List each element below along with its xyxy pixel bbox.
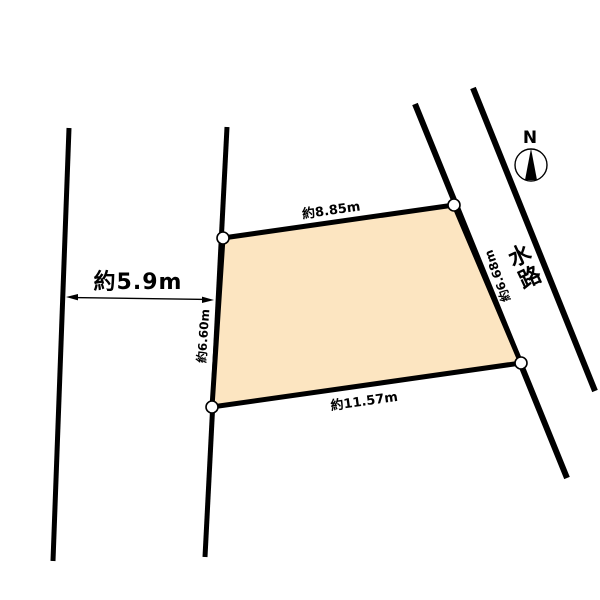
road-width-arrow-shaft: [74, 298, 206, 300]
site-plan-canvas: N 約8.85m 約11.57m 約6.60m 約6.68m 約5.9m 水路: [0, 0, 600, 600]
parcel-polygon: [212, 205, 521, 407]
road-edge-line-west: [53, 128, 69, 561]
arrowhead-right-icon: [202, 297, 214, 303]
compass: [515, 149, 547, 182]
parcel-vertex-marker-sw: [206, 401, 218, 413]
compass-north-label: N: [523, 128, 537, 148]
road-width-label: 約5.9m: [94, 264, 183, 296]
parcel-vertex-marker-nw: [217, 232, 229, 244]
parcel-vertex-marker-ne: [448, 199, 460, 211]
arrowhead-left-icon: [66, 294, 78, 300]
parcel-vertex-marker-se: [515, 357, 527, 369]
